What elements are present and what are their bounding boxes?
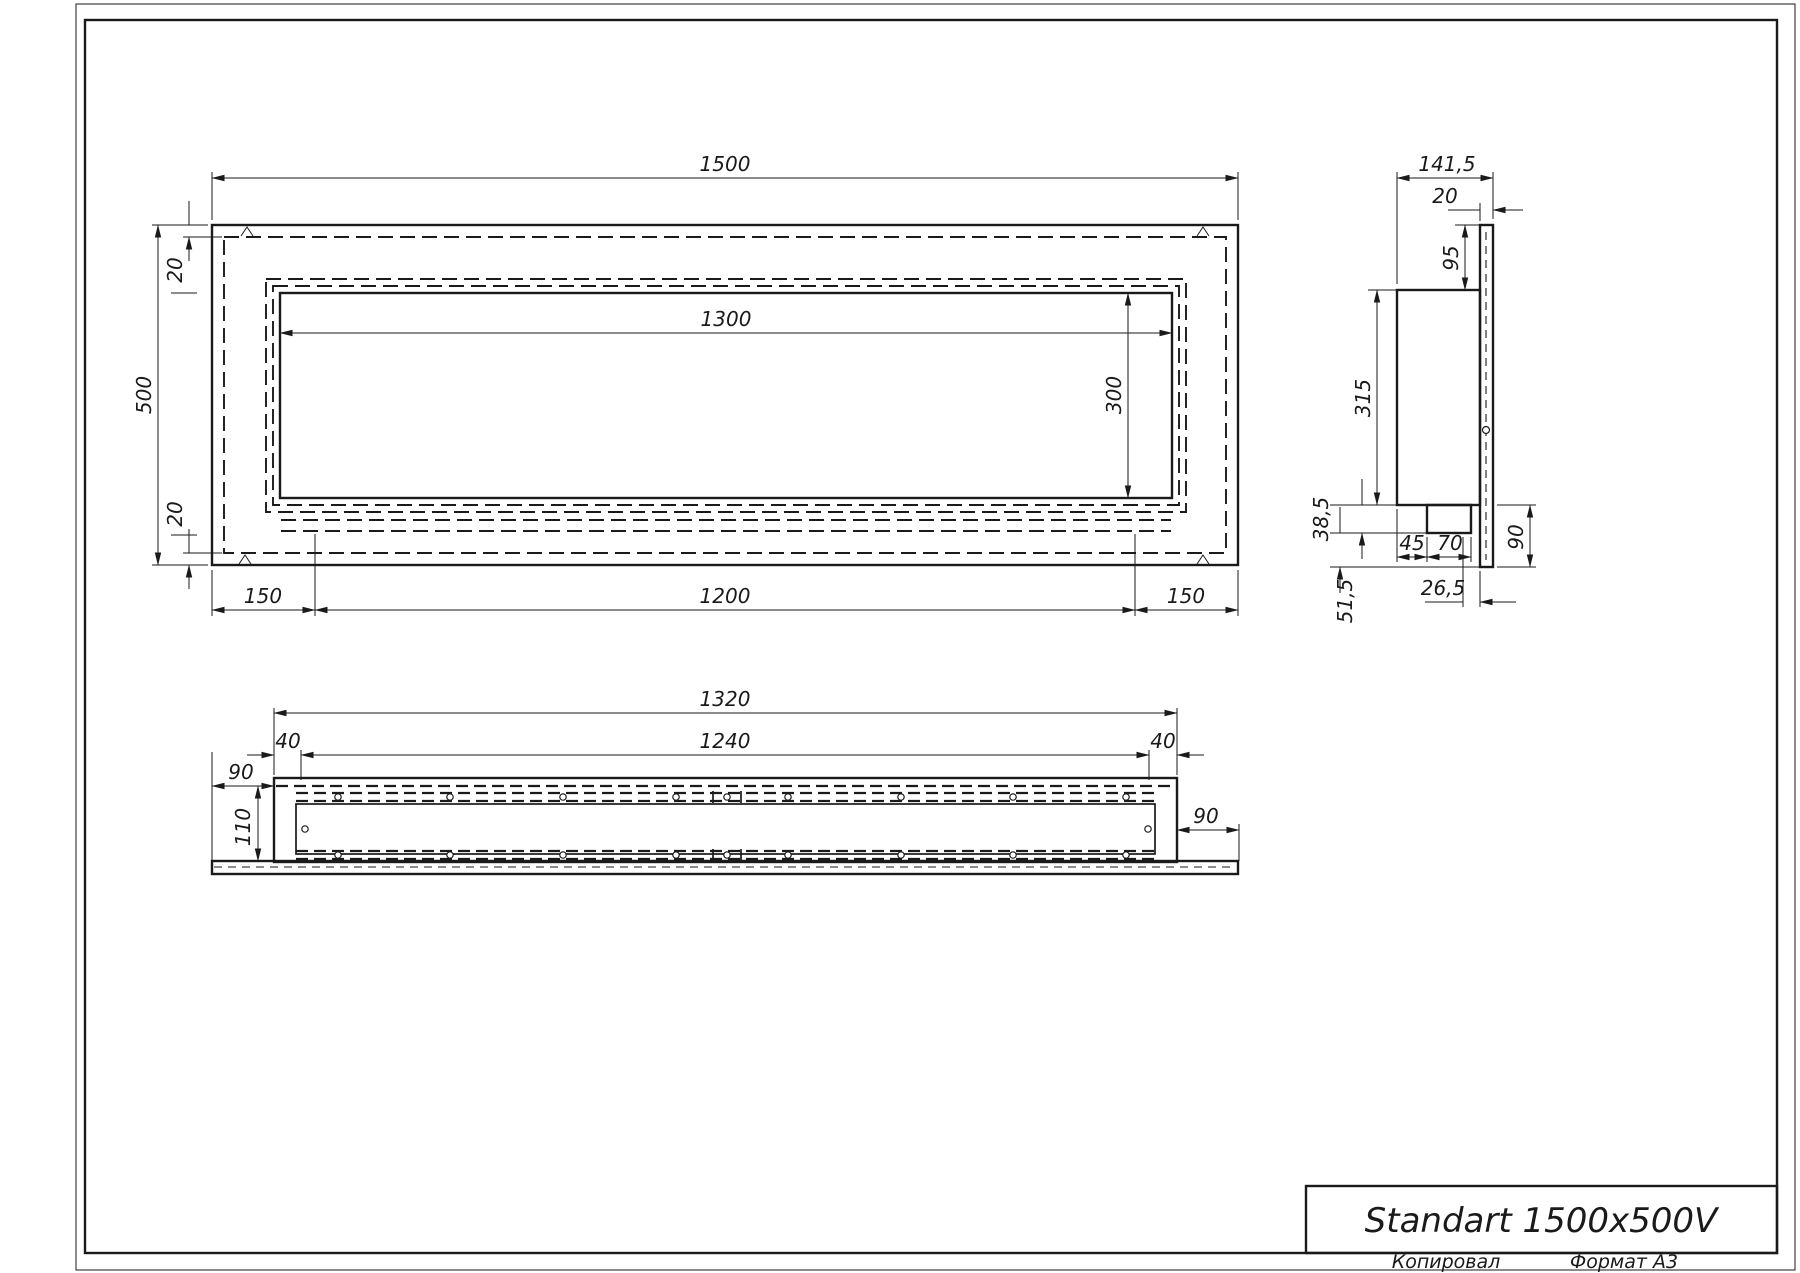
front-view: 1500 500 20 20 1300 300 150 1200	[132, 152, 1238, 616]
dim-front-opening-height: 300	[1102, 293, 1128, 498]
dim-bottom-inner-width-label: 1240	[700, 729, 751, 753]
dim-side-top-offset-label: 95	[1439, 245, 1463, 270]
dim-side-step: 38,5	[1309, 479, 1362, 559]
dim-side-bottom-height: 51,5	[1333, 507, 1357, 623]
format-label: Формат А3	[1570, 1251, 1678, 1273]
dim-side-depth: 141,5	[1397, 152, 1493, 178]
dim-front-width-label: 1500	[700, 152, 751, 176]
bottom-body	[274, 778, 1177, 862]
dim-side-front-plate-label: 20	[1432, 184, 1457, 208]
dim-side-top-offset: 95	[1439, 225, 1465, 290]
dim-side-tray-width-label: 70	[1437, 531, 1462, 555]
dim-front-tray-width: 1200	[315, 584, 1135, 610]
dim-side-depth-label: 141,5	[1418, 152, 1475, 176]
title-block: Standart 1500x500V Копировал Формат А3	[1306, 1186, 1777, 1273]
dim-bottom-corner-right-label: 40	[1150, 729, 1175, 753]
side-plate-hole	[1483, 427, 1490, 434]
side-tray	[1427, 505, 1471, 533]
dim-front-bottom-inset-label: 20	[163, 501, 187, 526]
side-body	[1397, 290, 1480, 505]
dim-front-width: 1500	[212, 152, 1238, 178]
drawing-frame	[85, 20, 1777, 1253]
bottom-view: 1320 1240 40 40 90 110 90	[212, 687, 1239, 874]
front-extension-lines	[152, 172, 1238, 616]
front-tray-hidden	[281, 520, 1171, 531]
dim-side-tray-width: 70	[1427, 531, 1471, 557]
dim-side-body-height-label: 315	[1351, 379, 1375, 417]
weld-clip-marks	[239, 227, 1209, 564]
dim-side-step-label: 38,5	[1309, 497, 1333, 542]
dim-side-tray-inset: 45	[1397, 531, 1427, 557]
dim-front-tray-width-label: 1200	[700, 584, 751, 608]
dim-bottom-inner-width: 1240	[301, 729, 1149, 755]
dim-side-body-height: 315	[1351, 290, 1377, 505]
dim-front-top-inset: 20	[163, 201, 189, 283]
dim-front-bottom-inset: 20	[163, 501, 189, 589]
technical-drawing: 1500 500 20 20 1300 300 150 1200	[0, 0, 1800, 1273]
front-outline	[212, 225, 1238, 565]
dim-front-margin-left-label: 150	[244, 584, 282, 608]
dim-front-margin-right: 150	[1135, 584, 1238, 610]
dim-bottom-overhang-right-label: 90	[1193, 804, 1218, 828]
front-back-panel-hidden	[224, 237, 1226, 553]
dim-bottom-overhang-left-label: 90	[228, 760, 253, 784]
dim-side-front-plate: 20	[1432, 184, 1523, 210]
page-edge	[76, 4, 1795, 1270]
dim-bottom-overhang-right: 90	[1177, 804, 1239, 830]
drawing-title: Standart 1500x500V	[1365, 1201, 1720, 1241]
dim-front-top-inset-label: 20	[163, 257, 187, 282]
drawing-sheet: 1500 500 20 20 1300 300 150 1200	[0, 0, 1800, 1273]
dim-front-opening-height-label: 300	[1102, 376, 1126, 414]
dim-front-height: 500	[132, 225, 158, 565]
dim-side-bottom-height-label: 51,5	[1333, 579, 1357, 624]
dim-bottom-depth: 110	[231, 786, 258, 861]
dim-front-margin-left: 150	[212, 584, 315, 610]
dim-bottom-overhang-left: 90	[212, 760, 274, 786]
dim-side-mount-height: 90	[1504, 505, 1530, 567]
side-view: 141,5 20 95 315 38,5 45 70 26,5	[1309, 152, 1536, 623]
dim-front-margin-right-label: 150	[1167, 584, 1205, 608]
sheet-frame	[76, 4, 1795, 1270]
dim-front-opening-width-label: 1300	[701, 307, 752, 331]
dim-side-front-gap-label: 26,5	[1421, 576, 1466, 600]
dim-bottom-corner-left-label: 40	[275, 729, 300, 753]
dim-front-height-label: 500	[132, 376, 156, 414]
dim-side-tray-inset-label: 45	[1399, 531, 1424, 555]
dim-bottom-depth-label: 110	[231, 808, 255, 846]
dim-bottom-body-width-label: 1320	[700, 687, 751, 711]
bottom-inner-opening	[296, 804, 1155, 854]
dim-bottom-body-width: 1320	[274, 687, 1177, 713]
dim-front-opening-width: 1300	[280, 307, 1172, 333]
copied-by-label: Копировал	[1392, 1251, 1501, 1273]
dim-side-mount-height-label: 90	[1504, 524, 1528, 549]
dim-side-front-gap: 26,5	[1421, 576, 1516, 602]
